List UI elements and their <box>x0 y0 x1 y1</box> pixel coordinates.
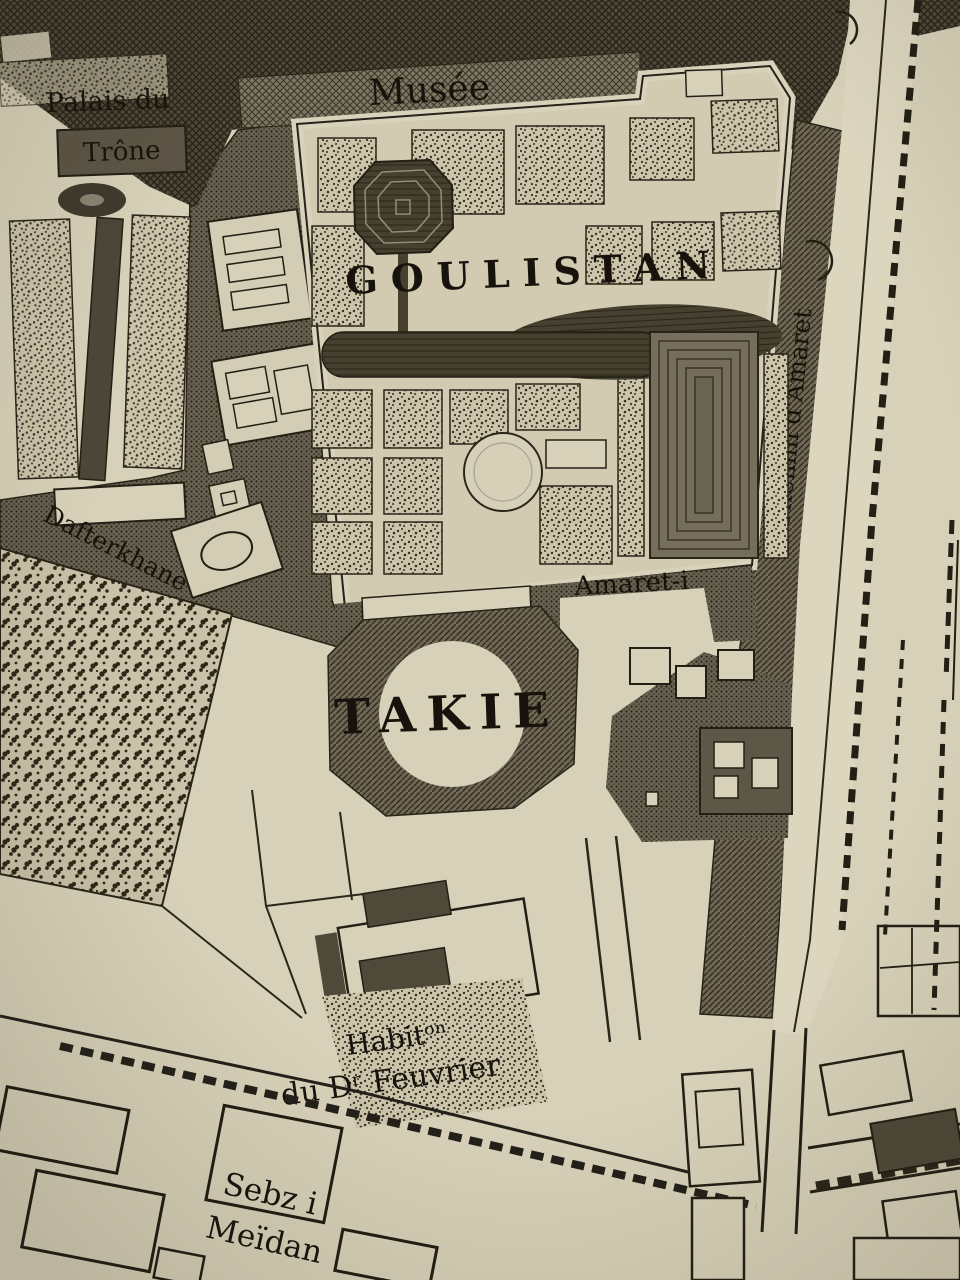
right-block-building <box>878 926 960 1016</box>
circle-pond <box>464 433 542 511</box>
garden-white-pavilion <box>546 440 606 468</box>
map-canvas: Musée Palais du Trône <box>0 0 960 1280</box>
courtyard-square-3 <box>718 650 754 680</box>
band-building-3 <box>202 440 234 475</box>
junction-building-4 <box>682 1070 760 1187</box>
badghir-building <box>700 728 792 814</box>
palais-parcel-left <box>10 219 79 479</box>
takie: TAKIE <box>328 606 578 816</box>
takie-label: TAKIE <box>333 682 561 746</box>
band-building-2-room <box>274 365 315 414</box>
junction-building-3 <box>854 1238 960 1280</box>
goulistan-garden: GOULISTAN <box>297 66 790 608</box>
long-pond <box>322 332 662 377</box>
palais-pond-oval-center <box>80 194 104 206</box>
goulistan-gate <box>686 69 723 96</box>
palais-parcel-right <box>124 215 191 469</box>
palais-label-line1: Palais du <box>45 84 170 119</box>
palais-label-line2: Trône <box>82 136 161 169</box>
top-left-light-patch <box>1 32 51 63</box>
courtyard-square-2 <box>676 666 706 698</box>
courtyard-dot <box>646 792 658 806</box>
talar-structure <box>650 332 758 558</box>
junction-building-5 <box>692 1198 744 1280</box>
courtyard-square-1 <box>630 648 670 684</box>
historic-city-map: Musée Palais du Trône <box>0 0 960 1280</box>
